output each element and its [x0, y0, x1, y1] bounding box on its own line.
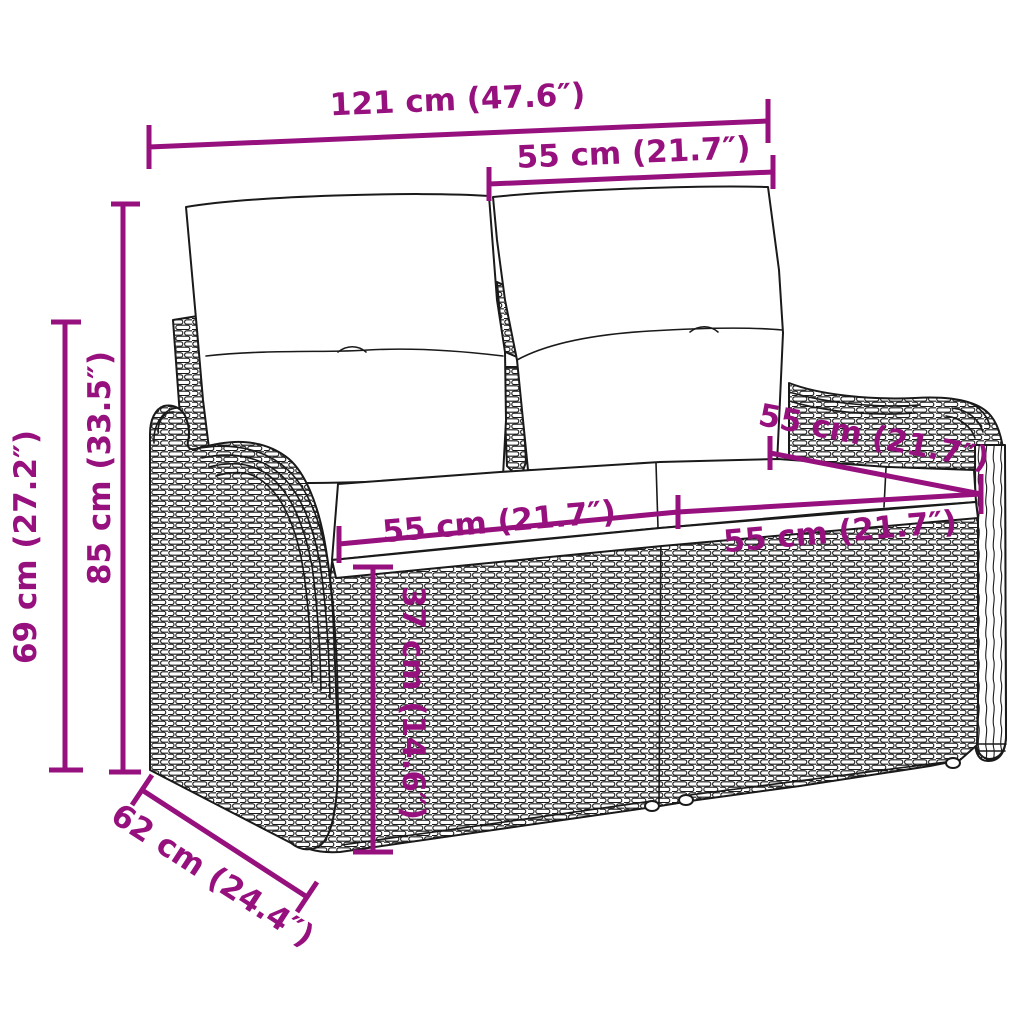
dim-label-overall-width: 121 cm (47.6″)	[329, 77, 586, 124]
dim-armrest-height: 69 cm (27.2″)	[8, 322, 83, 770]
base-foot	[679, 795, 693, 805]
dim-overall-height: 85 cm (33.5″)	[82, 204, 141, 772]
dim-label-overall-height: 85 cm (33.5″)	[82, 351, 118, 585]
dimension-diagram: 121 cm (47.6″) 55 cm (21.7″) 85 cm (33.5…	[0, 0, 1024, 1024]
base-foot	[645, 801, 659, 811]
back-cushion-left	[186, 194, 506, 483]
base-foot	[946, 758, 960, 768]
back-cushion-right	[493, 187, 783, 472]
dim-label-armrest-height: 69 cm (27.2″)	[8, 430, 44, 664]
dimension-diagram-page: 121 cm (47.6″) 55 cm (21.7″) 85 cm (33.5…	[0, 0, 1024, 1024]
dim-label-seat-height: 37 cm (14.6″)	[395, 586, 431, 820]
dim-label-backrest-width: 55 cm (21.7″)	[516, 130, 751, 176]
